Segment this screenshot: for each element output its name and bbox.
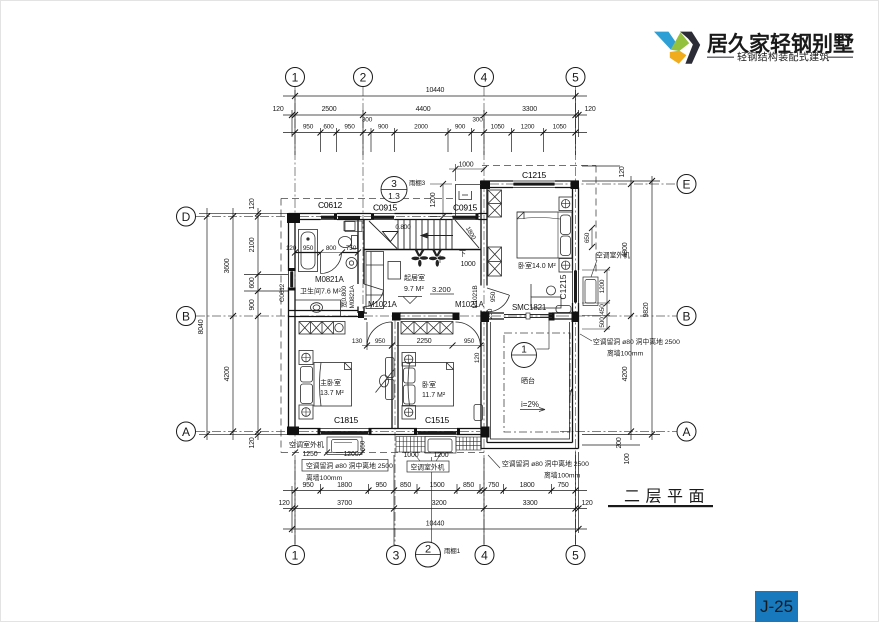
svg-text:9.7 M²: 9.7 M² <box>404 286 425 293</box>
svg-text:C1215: C1215 <box>522 170 547 180</box>
svg-text:750: 750 <box>346 245 357 252</box>
svg-text:C1815: C1815 <box>334 415 359 425</box>
svg-text:C0612: C0612 <box>318 200 343 210</box>
svg-text:5: 5 <box>572 549 579 563</box>
svg-text:D: D <box>182 210 191 224</box>
svg-text:900: 900 <box>378 124 389 131</box>
svg-text:离墙100mm: 离墙100mm <box>306 473 343 482</box>
svg-text:120: 120 <box>581 500 592 507</box>
svg-text:离墙100mm: 离墙100mm <box>607 349 644 358</box>
svg-text:1000: 1000 <box>461 261 476 268</box>
svg-text:J-25: J-25 <box>760 597 793 616</box>
svg-text:空调留洞 ø80 洞中离地 2500: 空调留洞 ø80 洞中离地 2500 <box>502 459 589 468</box>
svg-text:120: 120 <box>249 198 256 209</box>
svg-text:11.7 M²: 11.7 M² <box>422 392 446 399</box>
svg-text:4400: 4400 <box>416 106 431 113</box>
svg-text:1200: 1200 <box>430 192 437 207</box>
svg-text:1000: 1000 <box>459 162 474 169</box>
svg-text:1200: 1200 <box>521 124 535 131</box>
svg-text:3: 3 <box>393 549 400 563</box>
svg-text:800: 800 <box>326 245 337 252</box>
svg-text:A: A <box>182 425 190 439</box>
svg-text:2: 2 <box>425 544 431 556</box>
svg-text:4200: 4200 <box>224 366 231 381</box>
svg-text:C0915: C0915 <box>453 203 478 213</box>
svg-text:起居室: 起居室 <box>404 273 425 282</box>
svg-text:900: 900 <box>455 124 466 131</box>
svg-text:130: 130 <box>352 338 363 345</box>
svg-text:120: 120 <box>474 352 481 363</box>
svg-text:950: 950 <box>344 124 355 131</box>
svg-text:0.800: 0.800 <box>395 224 411 231</box>
svg-text:3600: 3600 <box>224 258 231 273</box>
svg-text:3200: 3200 <box>432 500 447 507</box>
svg-text:2000: 2000 <box>414 124 428 131</box>
svg-text:950: 950 <box>375 338 386 345</box>
svg-text:1800: 1800 <box>464 226 477 242</box>
svg-text:4: 4 <box>481 549 488 563</box>
svg-text:1000: 1000 <box>404 452 419 459</box>
svg-text:A: A <box>682 425 690 439</box>
svg-text:空调留洞 ø80 洞中离地 2500: 空调留洞 ø80 洞中离地 2500 <box>593 337 680 346</box>
svg-text:120: 120 <box>249 437 256 448</box>
svg-text:1200: 1200 <box>434 452 449 459</box>
svg-text:空调室外机: 空调室外机 <box>289 440 324 449</box>
svg-text:i=2%: i=2% <box>521 400 539 409</box>
svg-text:SMC1821: SMC1821 <box>512 303 547 312</box>
svg-text:C0612: C0612 <box>279 283 286 302</box>
svg-text:1: 1 <box>292 549 299 563</box>
svg-text:850: 850 <box>400 482 411 489</box>
svg-text:4: 4 <box>481 71 488 85</box>
svg-text:950: 950 <box>375 482 386 489</box>
svg-text:950: 950 <box>464 338 475 345</box>
svg-text:950: 950 <box>490 291 497 302</box>
svg-text:1250: 1250 <box>303 451 318 458</box>
svg-text:600: 600 <box>323 124 334 131</box>
svg-text:空调留洞 ø80 洞中离地 2500: 空调留洞 ø80 洞中离地 2500 <box>306 461 393 470</box>
svg-text:3300: 3300 <box>523 500 538 507</box>
svg-text:1.3: 1.3 <box>388 191 400 201</box>
svg-text:1: 1 <box>292 71 299 85</box>
svg-text:空调室外机: 空调室外机 <box>411 463 445 472</box>
svg-text:1200: 1200 <box>344 451 359 458</box>
svg-text:500: 500 <box>599 317 606 328</box>
svg-text:300: 300 <box>472 117 483 124</box>
svg-text:轻钢结构装配式建筑: 轻钢结构装配式建筑 <box>737 51 830 64</box>
svg-text:雨棚1: 雨棚1 <box>444 546 461 555</box>
svg-text:B: B <box>182 310 190 324</box>
svg-text:950: 950 <box>302 482 313 489</box>
svg-text:1050: 1050 <box>491 124 505 131</box>
svg-text:4200: 4200 <box>622 366 629 381</box>
svg-text:1500: 1500 <box>430 482 445 489</box>
svg-text:10440: 10440 <box>426 521 445 528</box>
svg-text:M0821A: M0821A <box>349 285 356 309</box>
svg-text:二层平面: 二层平面 <box>624 489 710 506</box>
svg-text:卧室14.0 M²: 卧室14.0 M² <box>518 261 556 270</box>
svg-text:2: 2 <box>360 71 367 85</box>
svg-text:1200: 1200 <box>599 279 606 293</box>
svg-text:M0821A: M0821A <box>315 275 344 284</box>
svg-text:1800: 1800 <box>337 482 352 489</box>
svg-text:雨棚3: 雨棚3 <box>409 178 426 187</box>
svg-text:M1021A: M1021A <box>368 300 397 309</box>
svg-text:C1215: C1215 <box>558 274 568 299</box>
svg-text:卧室: 卧室 <box>422 380 436 389</box>
svg-text:C1515: C1515 <box>425 415 450 425</box>
svg-text:空调室外机: 空调室外机 <box>596 251 630 260</box>
svg-text:13.7 M²: 13.7 M² <box>320 390 344 397</box>
svg-text:650: 650 <box>360 440 367 451</box>
svg-text:5: 5 <box>572 71 579 85</box>
svg-text:600: 600 <box>249 277 256 288</box>
svg-text:3: 3 <box>391 179 397 190</box>
svg-text:1800: 1800 <box>520 482 535 489</box>
svg-text:120: 120 <box>286 245 297 252</box>
svg-text:1: 1 <box>521 345 527 356</box>
svg-text:B: B <box>682 310 690 324</box>
svg-text:250: 250 <box>487 308 494 319</box>
svg-text:2500: 2500 <box>322 106 337 113</box>
svg-text:300: 300 <box>362 117 373 124</box>
svg-text:100: 100 <box>624 453 631 464</box>
svg-text:下: 下 <box>459 250 466 258</box>
svg-text:450: 450 <box>599 304 606 315</box>
svg-text:3.200: 3.200 <box>432 285 451 294</box>
svg-text:卫生间7.6 M²: 卫生间7.6 M² <box>300 287 342 296</box>
svg-text:宽0.800: 宽0.800 <box>339 286 348 308</box>
svg-text:950: 950 <box>303 124 314 131</box>
svg-text:750: 750 <box>488 482 499 489</box>
svg-text:200: 200 <box>616 437 623 448</box>
svg-text:E: E <box>682 178 690 192</box>
svg-text:C0915: C0915 <box>373 203 398 213</box>
svg-text:120: 120 <box>584 106 595 113</box>
svg-text:1050: 1050 <box>553 124 567 131</box>
svg-text:离墙100mm: 离墙100mm <box>544 471 581 480</box>
svg-text:900: 900 <box>249 299 256 310</box>
svg-text:2250: 2250 <box>417 338 432 345</box>
svg-text:3700: 3700 <box>337 500 352 507</box>
svg-text:120: 120 <box>278 500 289 507</box>
svg-text:120: 120 <box>619 166 626 177</box>
svg-text:120: 120 <box>272 106 283 113</box>
svg-text:2100: 2100 <box>249 237 256 252</box>
svg-text:3300: 3300 <box>522 106 537 113</box>
svg-text:650: 650 <box>584 232 591 243</box>
svg-text:8040: 8040 <box>198 319 205 334</box>
svg-text:10440: 10440 <box>426 87 445 94</box>
svg-text:M1021A: M1021A <box>455 300 484 309</box>
svg-text:750: 750 <box>557 482 568 489</box>
svg-text:主卧室: 主卧室 <box>320 378 341 387</box>
svg-text:晒台: 晒台 <box>521 376 535 385</box>
svg-text:9820: 9820 <box>643 302 650 317</box>
svg-text:850: 850 <box>463 482 474 489</box>
svg-text:950: 950 <box>303 245 314 252</box>
